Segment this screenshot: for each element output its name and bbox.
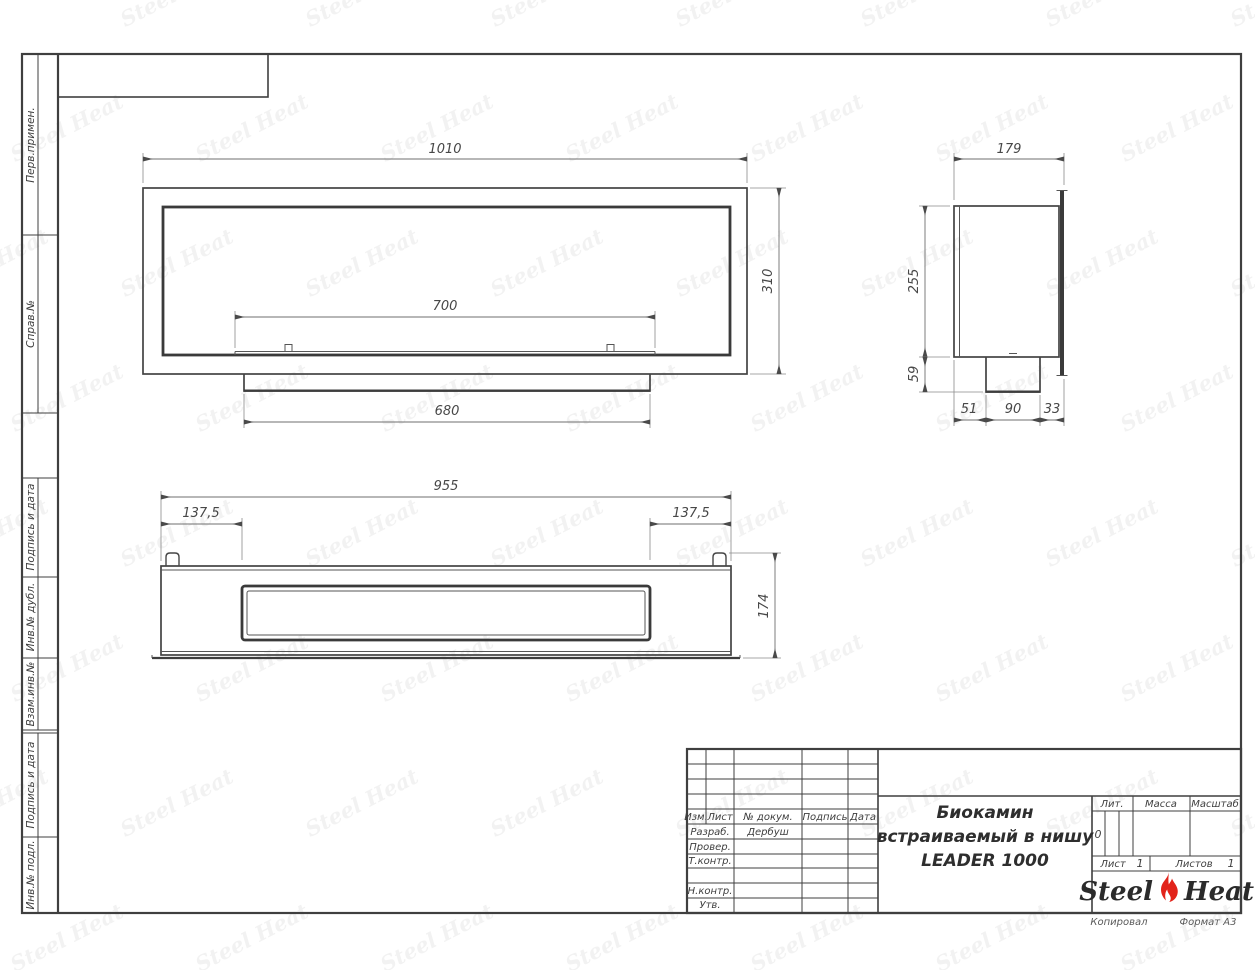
- sidebar-label-vzam-inv: Взам.инв.№: [25, 662, 37, 727]
- dim-bottom-left-inset: 137,5: [182, 506, 219, 521]
- format-label: Формат А3: [1180, 917, 1237, 928]
- dim-bottom-height: 174: [757, 594, 772, 619]
- dim-side-body-height: 255: [907, 269, 922, 294]
- top-designation-box: [58, 54, 268, 97]
- dim-side-back-offset: 51: [961, 402, 978, 417]
- dim-side-front-offset: 33: [1044, 402, 1061, 417]
- title-block: Изм. Лист № докум. Подпись Дата Разраб. …: [684, 749, 1254, 913]
- tb-row-utv: Утв.: [700, 900, 721, 911]
- tb-row-razrab: Разраб.: [690, 826, 729, 838]
- company-logo: Steel Heat: [1079, 872, 1254, 907]
- tb-sheets-label: Листов: [1174, 859, 1212, 870]
- tb-sheets-total: 1: [1228, 857, 1235, 870]
- slot-clip-left: [285, 345, 292, 352]
- hook-right: [713, 553, 726, 566]
- dim-side-depth: 179: [997, 142, 1022, 157]
- fuel-container-outline: [242, 586, 650, 640]
- tb-col-podpis: Подпись: [803, 812, 848, 823]
- copied-label: Копировал: [1090, 917, 1148, 928]
- tb-scale-label: Масштаб: [1191, 798, 1239, 810]
- tb-row-razrab-name: Дербуш: [746, 826, 789, 838]
- technical-drawing: Перв.примен. Справ.№ Подпись и дата Инв.…: [0, 0, 1255, 970]
- tb-mass-label: Масса: [1145, 799, 1177, 810]
- tb-sheet-label: Лист: [1099, 859, 1127, 870]
- side-view: 179 255 59 51 90 33: [907, 142, 1068, 426]
- dim-front-height: 310: [761, 269, 776, 294]
- front-view: 1010 310 700 680: [143, 142, 786, 428]
- title-line-3: LEADER 1000: [921, 851, 1049, 871]
- sidebar-label-inv-dubl: Инв.№ дубл.: [25, 583, 37, 652]
- tb-sheet-number: 1: [1137, 857, 1144, 870]
- dim-front-width: 1010: [428, 142, 461, 157]
- sidebar-label-podpis-data-2: Подпись и дата: [25, 742, 37, 829]
- tb-row-prover: Провер.: [689, 842, 731, 853]
- sidebar-label-sprav-no: Справ.№: [25, 300, 37, 348]
- logo-word-steel: Steel: [1079, 877, 1153, 907]
- dim-bottom-right-inset: 137,5: [672, 506, 709, 521]
- tb-row-tkontr: Т.контр.: [688, 856, 731, 867]
- tb-lit-value: 0: [1095, 828, 1102, 841]
- tb-row-nkontr: Н.контр.: [688, 886, 733, 897]
- tb-col-data: Дата: [849, 812, 876, 823]
- hook-left: [166, 553, 179, 566]
- bottom-view: 955 137,5 137,5 174: [152, 479, 781, 658]
- logo-word-heat: Heat: [1183, 877, 1254, 907]
- tb-col-izm: Изм.: [684, 812, 708, 823]
- flame-icon: [1161, 872, 1178, 902]
- sidebar-label-perv-primen: Перв.примен.: [25, 107, 37, 182]
- title-line-2: встраиваемый в нишу: [877, 827, 1094, 847]
- document-title: Биокамин встраиваемый в нишу LEADER 1000: [877, 803, 1094, 871]
- dim-side-base-height: 59: [907, 366, 922, 383]
- tb-col-list: Лист: [706, 812, 734, 823]
- tb-lit-label: Лит.: [1099, 799, 1123, 810]
- dim-front-slot-width: 700: [433, 299, 458, 314]
- tb-col-docnum: № докум.: [742, 812, 792, 823]
- dim-front-base-width: 680: [435, 404, 460, 419]
- sidebar-label-inv-podl: Инв.№ подл.: [25, 840, 37, 909]
- title-line-1: Биокамин: [936, 803, 1033, 823]
- dim-side-base-depth: 90: [1005, 402, 1022, 417]
- dim-bottom-width: 955: [434, 479, 459, 494]
- sheet-frame: [22, 54, 1241, 913]
- left-sidebar: Перв.примен. Справ.№ Подпись и дата Инв.…: [22, 54, 58, 913]
- sidebar-label-podpis-data-1: Подпись и дата: [25, 484, 37, 571]
- slot-clip-right: [607, 345, 614, 352]
- drawing-sheet: Steel HeatSteel HeatSteel HeatSteel Heat…: [0, 0, 1255, 970]
